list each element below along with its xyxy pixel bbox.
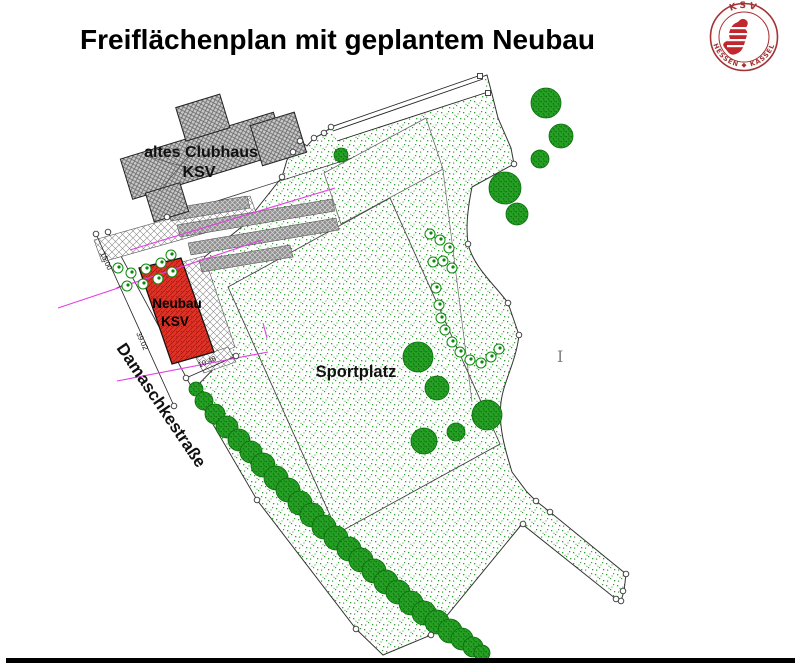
tree — [425, 376, 449, 400]
survey-marker-circle — [511, 161, 517, 167]
bush-dot — [157, 276, 160, 279]
footer-rule — [6, 658, 795, 663]
neubau-label-line1: Neubau — [152, 296, 202, 311]
clubhouse-label-line2: KSV — [183, 164, 216, 181]
survey-marker-square — [478, 74, 483, 79]
survey-marker-circle — [328, 124, 334, 130]
bush-dot — [444, 327, 447, 330]
text-cursor: I — [557, 347, 563, 366]
survey-marker-circle — [311, 135, 317, 141]
tree — [472, 400, 502, 430]
bush-dot — [170, 252, 173, 255]
survey-marker-circle — [533, 498, 539, 504]
tree — [531, 88, 561, 118]
bush-dot — [451, 339, 454, 342]
bush-dot — [142, 281, 145, 284]
bush-dot — [469, 357, 472, 360]
bush-dot — [171, 269, 174, 272]
survey-marker-circle — [233, 353, 239, 359]
tree — [506, 203, 528, 225]
bush-dot — [435, 285, 438, 288]
bush-dot — [130, 270, 133, 273]
survey-marker-circle — [547, 509, 553, 515]
bush-dot — [459, 349, 462, 352]
bush-dot — [429, 231, 432, 234]
survey-marker-circle — [321, 130, 327, 136]
tree — [489, 172, 521, 204]
survey-marker-circle — [465, 241, 471, 247]
survey-marker-circle — [183, 375, 189, 381]
bush-dot — [117, 265, 120, 268]
tree — [403, 342, 433, 372]
bush-dot — [498, 346, 501, 349]
tree — [411, 428, 437, 454]
tree — [447, 423, 465, 441]
bush-dot — [448, 245, 451, 248]
survey-marker-circle — [428, 632, 434, 638]
survey-marker-circle — [353, 626, 359, 632]
bush-dot — [432, 259, 435, 262]
survey-marker-circle — [297, 138, 303, 144]
bush-dot — [145, 266, 148, 269]
dimension-label-side: 39.02 — [134, 331, 150, 352]
survey-marker-circle — [290, 149, 296, 155]
ksv-logo: KSV HESSEN ◆ KASSEL — [711, 1, 778, 71]
survey-marker-square — [486, 91, 491, 96]
bush-dot — [451, 265, 454, 268]
bush-dot — [439, 237, 442, 240]
tree — [334, 148, 348, 162]
plan-page: altes Clubhaus KSV Neubau KSV Sportplatz… — [0, 0, 800, 668]
survey-marker-circle — [505, 300, 511, 306]
survey-marker-circle — [164, 214, 170, 220]
tree — [549, 124, 573, 148]
survey-marker-circle — [623, 571, 629, 577]
survey-marker-circle — [279, 174, 285, 180]
street-label: Damaschkestraße — [113, 340, 210, 471]
bush-dot — [438, 302, 441, 305]
sportplatz-label: Sportplatz — [316, 363, 397, 381]
bush-dot — [160, 260, 163, 263]
bush-dot — [442, 258, 445, 261]
bush-dot — [490, 354, 493, 357]
survey-marker-circle — [516, 332, 522, 338]
clubhouse-label-line1: altes Clubhaus — [144, 144, 258, 161]
site-plan-canvas: altes Clubhaus KSV Neubau KSV Sportplatz… — [0, 0, 800, 668]
survey-marker-circle — [93, 231, 99, 237]
survey-marker-circle — [254, 497, 260, 503]
neubau-label-line2: KSV — [161, 314, 189, 329]
survey-marker-circle — [613, 596, 619, 602]
survey-marker-circle — [520, 521, 526, 527]
bush-dot — [440, 315, 443, 318]
bush-dot — [480, 360, 483, 363]
tree — [531, 150, 549, 168]
survey-marker-circle — [620, 588, 626, 594]
page-title: Freiflächenplan mit geplantem Neubau — [80, 24, 595, 55]
survey-marker-circle — [105, 229, 111, 235]
bush-dot — [126, 283, 129, 286]
